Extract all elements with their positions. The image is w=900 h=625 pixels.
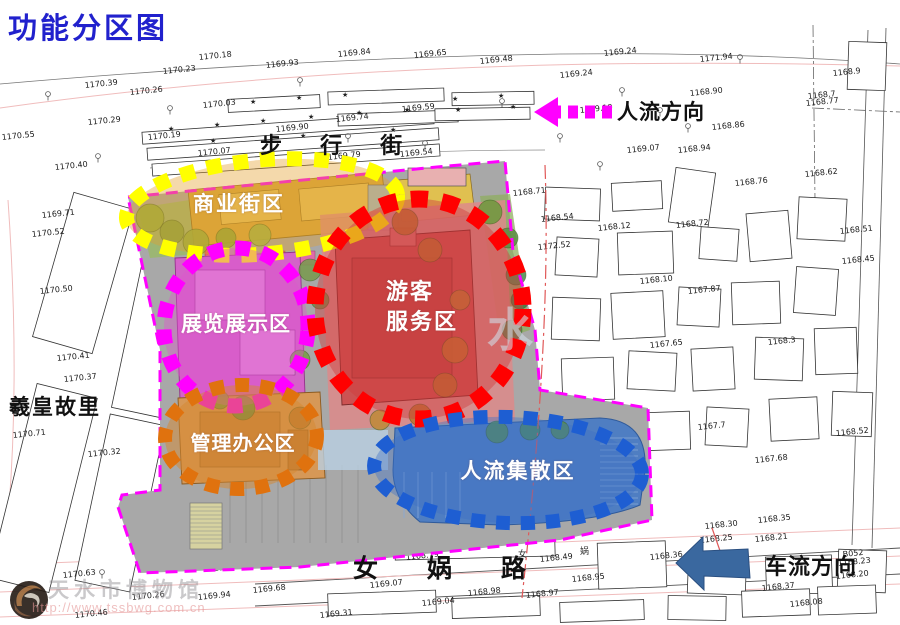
zone-label-commercial: 商业街区 <box>168 188 310 218</box>
star-marker-icon: ★ <box>250 98 256 106</box>
cadastral-building <box>560 600 645 623</box>
elevation-label: 1168.35 <box>757 513 791 525</box>
elevation-label: 1168.30 <box>704 519 738 531</box>
cadastral-building <box>699 227 739 262</box>
elevation-label: 1170.55 <box>1 130 35 142</box>
elevation-label: 1169.68 <box>252 583 286 595</box>
survey-tree-icon <box>558 134 563 139</box>
elevation-label: 1170.40 <box>54 160 88 172</box>
elevation-label: 1168.10 <box>639 274 673 286</box>
watermark-faint-glyph: 水 <box>487 294 533 360</box>
zoning-map-page: ★★★★★★★★★★★★★★★★ 1170.551170.291170.1911… <box>0 0 900 625</box>
survey-tree-icon <box>298 78 303 83</box>
elevation-label: 1168.12 <box>597 221 631 233</box>
north-building <box>408 168 466 186</box>
elevation-label: 1170.41 <box>56 351 90 363</box>
zone-label-exhibition: 展览展示区 <box>163 308 309 338</box>
road-name-small: 娲 <box>580 546 589 556</box>
elevation-label: 1169.65 <box>413 48 447 60</box>
star-marker-icon: ★ <box>452 95 458 103</box>
elevation-label: 1168.71 <box>512 186 546 198</box>
pedestrian-flow-label: 人流方向 <box>617 96 705 126</box>
star-marker-icon: ★ <box>296 94 302 102</box>
elevation-label: 1169.24 <box>603 46 637 58</box>
elevation-label: 1170.23 <box>162 64 196 76</box>
road-edge-line <box>852 30 868 545</box>
vehicle-flow-label: 车流方向 <box>765 549 857 581</box>
page-title: 功能分区图 <box>8 5 168 47</box>
elevation-label: 1169.31 <box>319 608 353 620</box>
cadastral-building <box>617 231 673 275</box>
cadastral-building <box>452 91 534 105</box>
zone-label-admin: 管理办公区 <box>170 427 316 456</box>
elevation-label: 1170.26 <box>129 85 163 97</box>
elevation-label: 1167.68 <box>754 453 788 465</box>
cadastral-building <box>769 397 819 441</box>
cadastral-building <box>551 297 600 341</box>
parcel-axis-line <box>812 108 900 112</box>
elevation-label: 1169.24 <box>559 68 593 80</box>
elevation-label: 1170.18 <box>198 50 232 62</box>
elevation-label: 1170.37 <box>63 372 97 384</box>
star-marker-icon: ★ <box>260 117 266 125</box>
star-marker-icon: ★ <box>214 121 220 129</box>
elevation-label: 1169.84 <box>337 47 371 59</box>
elevation-label: 1170.52 <box>31 227 65 239</box>
elevation-label: 1168.97 <box>525 588 559 600</box>
elevation-label: 1168.62 <box>804 167 838 179</box>
elevation-label: 1168.86 <box>711 120 745 132</box>
zone-label-circulation: 人流集散区 <box>442 455 594 485</box>
cadastral-building <box>228 95 321 113</box>
cadastral-building <box>691 347 735 391</box>
cadastral-building <box>561 357 614 401</box>
cadastral-building <box>793 267 838 316</box>
cadastral-building <box>818 585 877 615</box>
cadastral-building <box>611 291 665 340</box>
cadastral-building <box>746 210 792 261</box>
elevation-label: 1169.93 <box>265 58 299 70</box>
star-marker-icon: ★ <box>210 137 216 145</box>
street-label-nvwa-road: 女 娲 路 <box>353 549 547 585</box>
elevation-label: 1170.39 <box>84 78 118 90</box>
survey-tree-icon <box>96 154 101 159</box>
cadastral-building <box>597 541 667 589</box>
cadastral-building <box>627 351 677 391</box>
star-marker-icon: ★ <box>510 103 516 111</box>
elevation-label: 1168.94 <box>677 143 711 155</box>
survey-tree-icon <box>46 92 51 97</box>
star-marker-icon: ★ <box>342 91 348 99</box>
survey-tree-icon <box>168 106 173 111</box>
star-marker-icon: ★ <box>455 106 461 114</box>
street-label-pedestrian: 步 行 街 <box>260 128 418 160</box>
survey-tree-icon <box>620 88 625 93</box>
cadastral-building <box>668 595 726 620</box>
elevation-label: 1168.76 <box>734 176 768 188</box>
elevation-label: 1170.29 <box>87 115 121 127</box>
cadastral-building <box>731 281 780 325</box>
contour-line <box>0 63 900 108</box>
road-edge-line <box>872 28 886 548</box>
elevation-label: 1168.45 <box>841 254 875 266</box>
elevation-label: 1167.65 <box>649 338 683 350</box>
cadastral-building <box>814 327 858 374</box>
elevation-label: 1168.98 <box>467 586 501 598</box>
survey-tree-icon <box>598 162 603 167</box>
cadastral-building <box>611 181 662 212</box>
flow-arrow-head <box>534 97 558 127</box>
watermark-url: http://www.tssbwg.com.cn <box>32 600 206 615</box>
place-label-xihuang: 羲皇故里 <box>9 391 101 421</box>
star-marker-icon: ★ <box>308 113 314 121</box>
star-marker-icon: ★ <box>498 92 504 100</box>
stair-steps <box>190 503 222 549</box>
elevation-label: 1171.94 <box>699 52 733 64</box>
elevation-label: 1169.07 <box>626 143 660 155</box>
